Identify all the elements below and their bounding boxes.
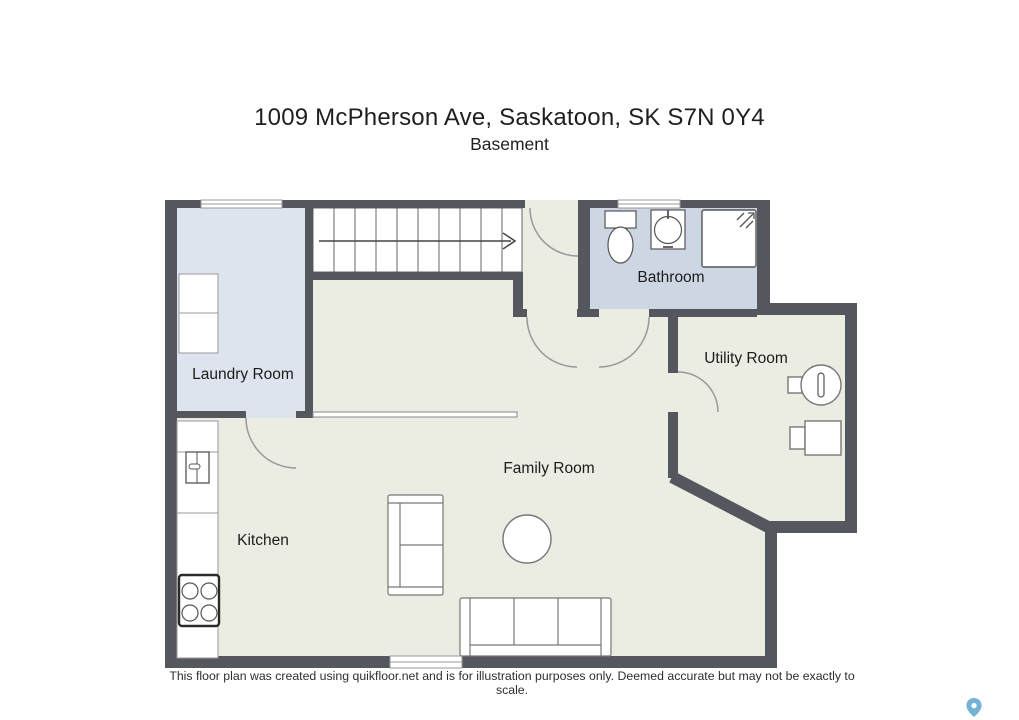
- sofa-icon: [460, 598, 611, 656]
- utility-room-label: Utility Room: [704, 350, 788, 367]
- wall-bathroom-left: [578, 208, 590, 317]
- wall-bathroom-bottom-a: [590, 309, 599, 317]
- wall-bottom-exterior-b: [462, 656, 777, 668]
- wall-top-exterior-c: [578, 200, 618, 208]
- wall-top-exterior-a: [165, 200, 201, 208]
- stove-icon: [179, 575, 219, 626]
- wall-top-exterior-b: [282, 200, 525, 208]
- railing: [313, 412, 517, 417]
- shower-icon: [702, 210, 756, 267]
- kitchen-sink-icon: [186, 452, 209, 483]
- wall-family-right-exterior: [765, 521, 777, 668]
- wall-laundry-right: [305, 208, 313, 418]
- wall-under-stairs: [305, 272, 523, 280]
- laundry-cabinet-icon: [179, 274, 218, 353]
- disclaimer-text: This floor plan was created using quikfl…: [165, 669, 859, 697]
- floor-plan-page: 1009 McPherson Ave, Saskatoon, SK S7N 0Y…: [0, 0, 1019, 720]
- loveseat-icon: [388, 495, 443, 595]
- toilet-icon: [605, 211, 636, 263]
- wall-laundry-bottom-a: [177, 411, 246, 418]
- map-pin-icon: [966, 698, 981, 717]
- bathroom-sink-icon: [651, 210, 685, 249]
- kitchen-label: Kitchen: [237, 532, 289, 549]
- window-family-bottom: [390, 656, 462, 668]
- wall-left-exterior: [165, 200, 177, 668]
- wall-bathroom-bottom-b: [649, 309, 757, 317]
- stairs: [313, 208, 522, 272]
- wall-utility-top-exterior: [757, 303, 857, 315]
- wall-utility-left-b: [668, 412, 678, 478]
- coffee-table-icon: [503, 515, 551, 563]
- laundry-room-label: Laundry Room: [192, 366, 294, 383]
- wall-utility-bottom-exterior: [768, 521, 857, 533]
- wall-bathroom-right-exterior: [757, 200, 770, 312]
- wall-hall-bottom-a: [513, 309, 527, 317]
- wall-utility-right-exterior: [845, 303, 857, 533]
- kitchen-counter: [177, 421, 219, 658]
- window-bathroom: [618, 200, 680, 208]
- wall-utility-left-a: [668, 315, 678, 373]
- bathroom-label: Bathroom: [637, 269, 704, 286]
- entry-door-opening: [525, 200, 578, 208]
- wall-top-exterior-d: [680, 200, 770, 208]
- wall-laundry-bottom-b: [296, 411, 313, 418]
- floor-plan-drawing: Laundry Room Bathroom Utility Room Famil…: [0, 0, 1019, 720]
- family-room-label: Family Room: [503, 460, 594, 477]
- window-laundry: [201, 200, 282, 208]
